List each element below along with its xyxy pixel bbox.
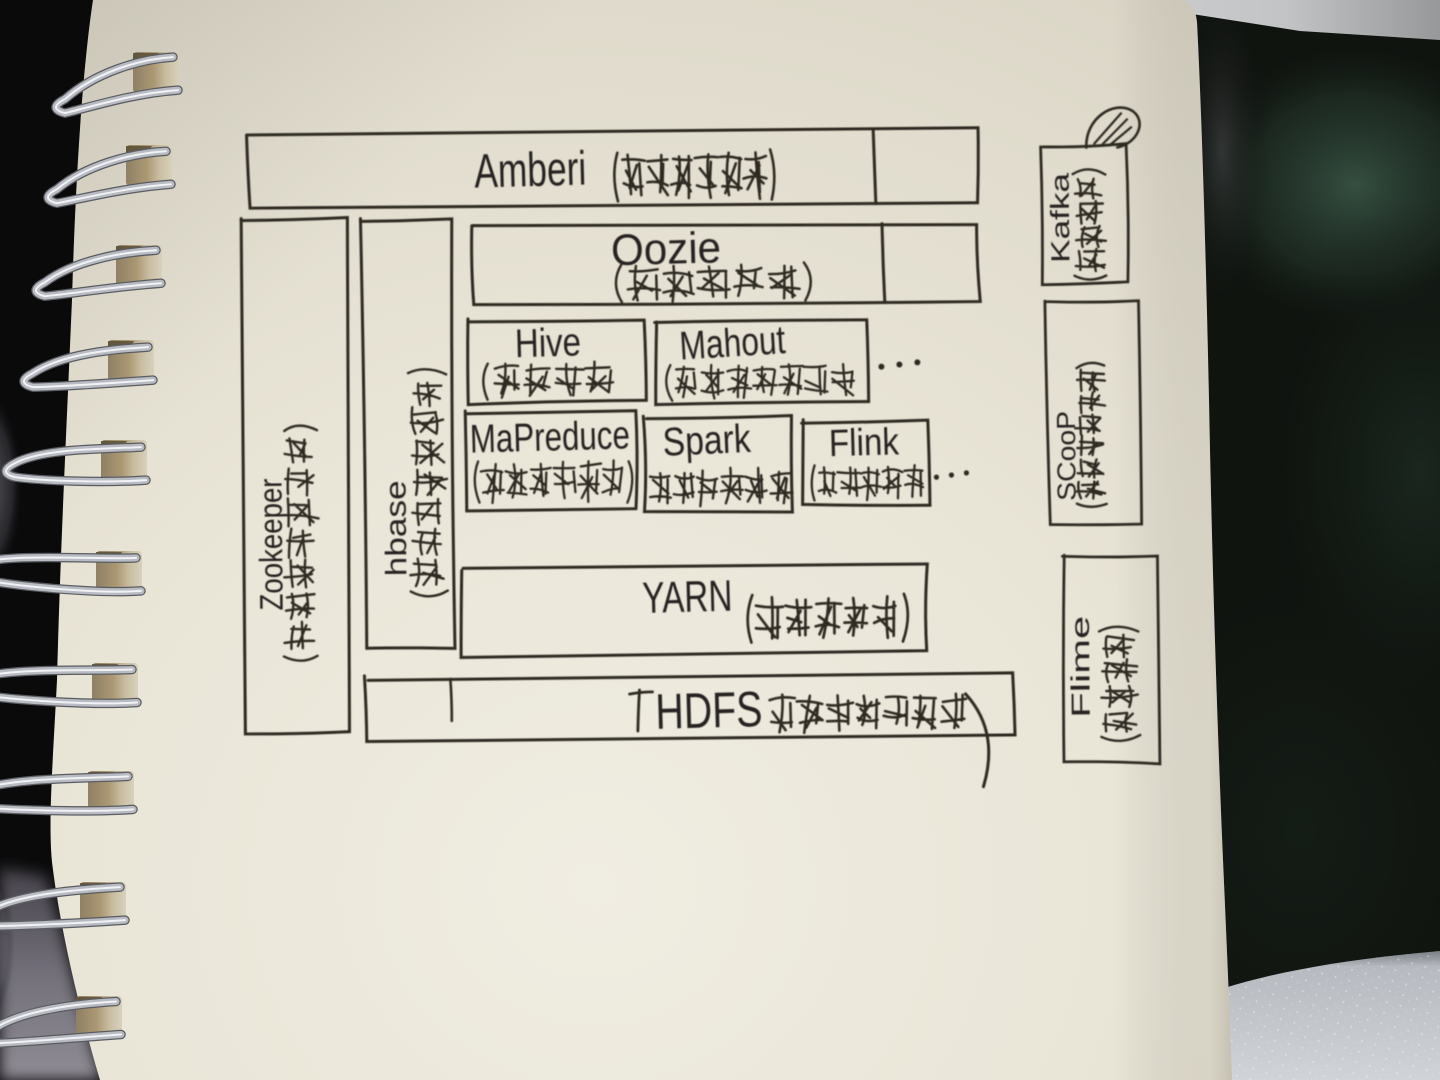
svg-text:MaPreduce: MaPreduce xyxy=(469,413,630,461)
svg-text:SCooP: SCooP xyxy=(1051,411,1082,501)
svg-text:hbase: hbase xyxy=(379,480,413,576)
svg-text:Flink: Flink xyxy=(828,421,900,465)
svg-text:Hive: Hive xyxy=(514,320,581,366)
svg-text:YARN: YARN xyxy=(642,572,733,623)
svg-text:Mahout: Mahout xyxy=(678,318,787,368)
svg-text:Oozie: Oozie xyxy=(610,223,721,275)
svg-text:Flime: Flime xyxy=(1065,616,1096,718)
svg-text:Spark: Spark xyxy=(662,417,753,465)
svg-text:Kafka: Kafka xyxy=(1045,172,1076,263)
svg-text:Zookeeper: Zookeeper xyxy=(252,478,289,611)
svg-text:Amberi: Amberi xyxy=(474,143,587,199)
svg-text:HDFS: HDFS xyxy=(655,681,763,740)
